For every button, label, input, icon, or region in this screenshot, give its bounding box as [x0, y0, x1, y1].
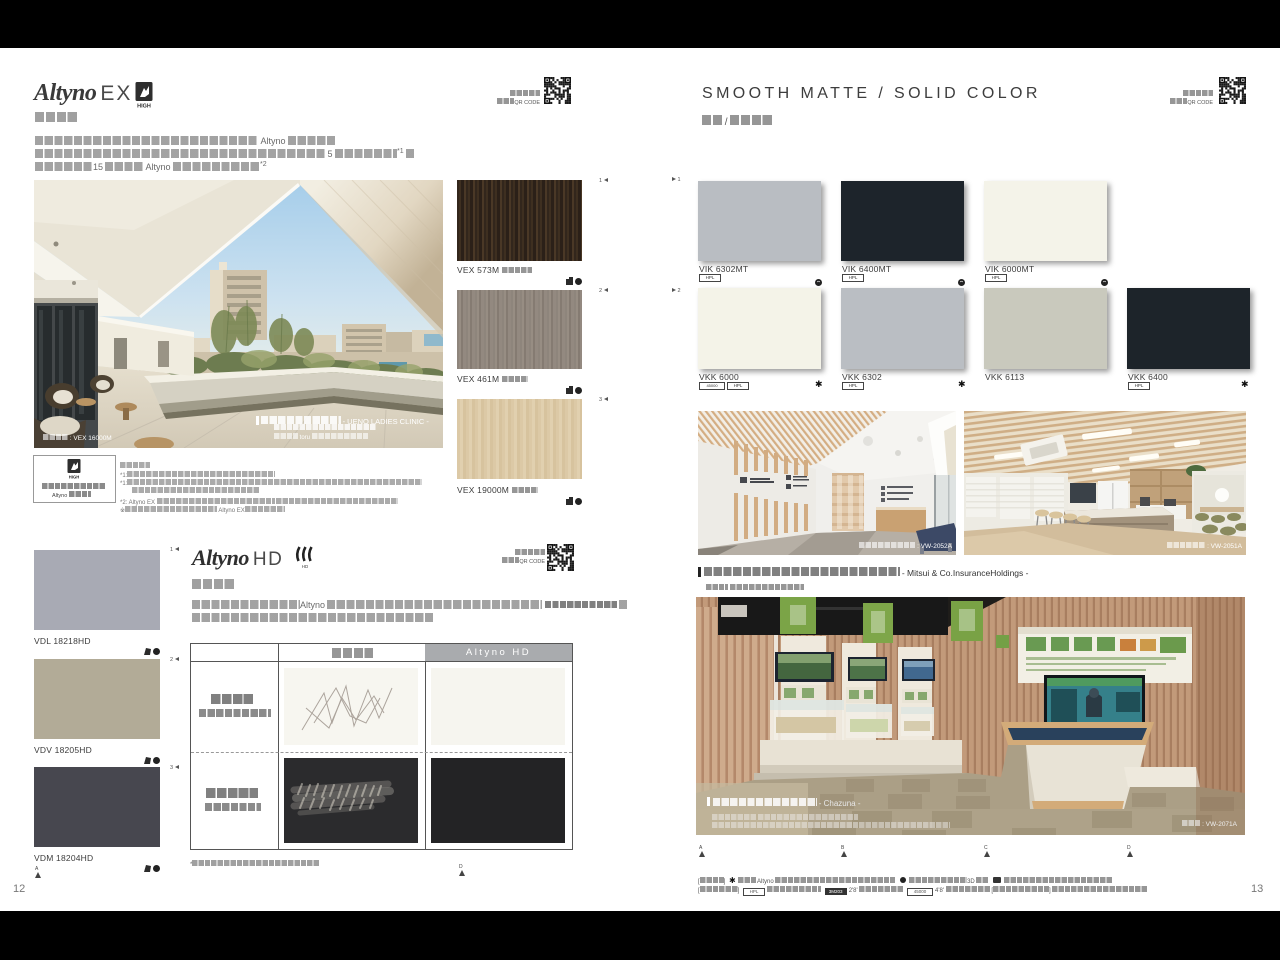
svg-text:HIGH: HIGH: [69, 475, 79, 480]
svg-text:HIGH: HIGH: [137, 104, 151, 109]
svg-text:HD: HD: [302, 564, 309, 569]
